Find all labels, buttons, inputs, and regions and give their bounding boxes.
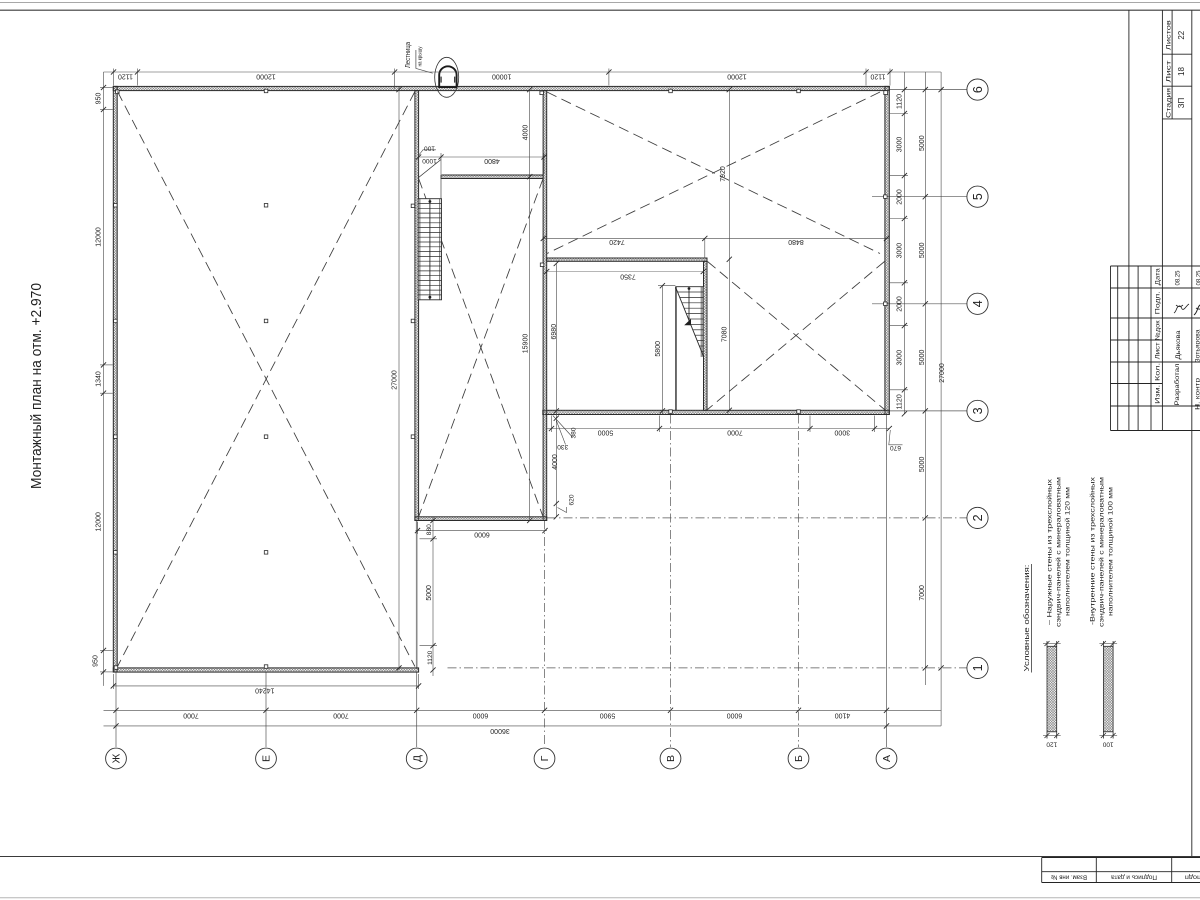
- svg-text:1120: 1120: [896, 94, 903, 109]
- svg-text:Лист: Лист: [1155, 342, 1162, 359]
- svg-text:1000: 1000: [422, 157, 437, 164]
- svg-text:1120: 1120: [870, 73, 885, 80]
- svg-text:7000: 7000: [333, 711, 349, 718]
- svg-text:Г: Г: [539, 755, 551, 761]
- svg-text:сэндвич-панелей с минераловатн: сэндвич-панелей с минераловатным: [1098, 477, 1106, 627]
- svg-text:6980: 6980: [551, 324, 558, 340]
- svg-text:3: 3: [971, 407, 985, 414]
- svg-text:Разработал: Разработал: [1173, 363, 1181, 405]
- svg-text:7350: 7350: [620, 273, 636, 280]
- svg-text:наполнителем толщиной 100 мм: наполнителем толщиной 100 мм: [1107, 487, 1115, 616]
- svg-text:2000: 2000: [896, 189, 903, 205]
- svg-text:12000: 12000: [95, 512, 102, 532]
- svg-text:5000: 5000: [598, 429, 614, 436]
- svg-text:3000: 3000: [896, 137, 903, 153]
- svg-text:330: 330: [557, 443, 568, 450]
- svg-text:Листов: Листов: [1166, 19, 1173, 50]
- svg-text:Подп.: Подп.: [1155, 291, 1162, 314]
- svg-text:950: 950: [92, 655, 99, 667]
- svg-text:Дата: Дата: [1155, 268, 1162, 285]
- svg-text:Лист: Лист: [1166, 60, 1173, 82]
- svg-text:8480: 8480: [788, 238, 804, 245]
- svg-text:Условные обозначения:: Условные обозначения:: [1022, 565, 1031, 672]
- svg-text:– Наружные стены из трехслойны: – Наружные стены из трехслойных: [1046, 478, 1054, 625]
- svg-text:А: А: [881, 755, 893, 762]
- svg-text:12000: 12000: [256, 72, 276, 79]
- svg-text:4000: 4000: [522, 125, 529, 141]
- svg-text:7000: 7000: [183, 711, 199, 718]
- svg-text:6: 6: [971, 86, 985, 93]
- svg-text:Монтажный план на отм. +2.970: Монтажный план на отм. +2.970: [29, 283, 45, 489]
- svg-text:100: 100: [1102, 741, 1113, 748]
- svg-text:08.25: 08.25: [1196, 270, 1200, 286]
- svg-text:1340: 1340: [96, 371, 103, 387]
- svg-text:3000: 3000: [896, 350, 903, 366]
- svg-text:3000: 3000: [896, 243, 903, 259]
- svg-text:7080: 7080: [721, 327, 728, 343]
- svg-text:18: 18: [1177, 67, 1186, 76]
- svg-text:1120: 1120: [896, 394, 903, 409]
- svg-text:7420: 7420: [609, 238, 625, 245]
- svg-text:12000: 12000: [727, 72, 747, 79]
- svg-text:120: 120: [1046, 741, 1057, 748]
- svg-text:14240: 14240: [255, 687, 275, 694]
- svg-text:1: 1: [971, 664, 985, 671]
- svg-text:5900: 5900: [600, 711, 616, 718]
- svg-text:1120: 1120: [427, 650, 434, 665]
- svg-text:6000: 6000: [727, 711, 743, 718]
- svg-text:15900: 15900: [522, 334, 529, 354]
- svg-text:подп: подп: [1185, 874, 1200, 881]
- svg-text:Ж: Ж: [111, 753, 123, 763]
- svg-text:7000: 7000: [727, 429, 743, 436]
- svg-text:В: В: [665, 755, 677, 762]
- svg-text:22: 22: [1177, 30, 1186, 39]
- svg-text:Д: Д: [411, 755, 423, 762]
- svg-text:950: 950: [96, 93, 103, 105]
- svg-text:5000: 5000: [919, 457, 926, 473]
- svg-text:Дьякова: Дьякова: [1175, 330, 1182, 359]
- svg-text:670: 670: [890, 444, 901, 451]
- svg-text:36000: 36000: [490, 727, 510, 734]
- svg-text:Стадия: Стадия: [1166, 87, 1173, 118]
- svg-text:4: 4: [971, 300, 985, 307]
- svg-text:27000: 27000: [939, 363, 946, 383]
- svg-text:№док: №док: [1155, 320, 1162, 340]
- svg-text:10000: 10000: [492, 72, 512, 79]
- svg-text:Зотьярова: Зотьярова: [1195, 329, 1200, 362]
- svg-text:380: 380: [570, 427, 577, 438]
- svg-text:12000: 12000: [95, 227, 102, 247]
- svg-text:5: 5: [971, 193, 985, 200]
- svg-text:Е: Е: [261, 755, 273, 762]
- svg-text:27000: 27000: [392, 370, 399, 390]
- svg-text:Б: Б: [793, 755, 805, 762]
- svg-text:Н. контр: Н. контр: [1195, 378, 1200, 410]
- svg-text:2: 2: [971, 514, 985, 521]
- svg-text:наполнителем толщиной 120 мм: наполнителем толщиной 120 мм: [1064, 487, 1072, 616]
- svg-text:5000: 5000: [919, 350, 926, 366]
- svg-text:4800: 4800: [484, 157, 500, 164]
- svg-text:6000: 6000: [474, 531, 490, 538]
- svg-text:3000: 3000: [834, 429, 850, 436]
- svg-text:4000: 4000: [552, 454, 559, 470]
- svg-text:1120: 1120: [118, 73, 133, 80]
- svg-text:ЗП: ЗП: [1177, 97, 1186, 108]
- svg-text:08.25: 08.25: [1175, 270, 1182, 286]
- svg-text:сэндвич-панелей с минераловатн: сэндвич-панелей с минераловатным: [1055, 477, 1063, 627]
- svg-text:100: 100: [424, 145, 435, 152]
- svg-text:5000: 5000: [426, 585, 433, 601]
- svg-text:на крышу: на крышу: [418, 46, 424, 66]
- svg-text:Лестница: Лестница: [403, 42, 412, 68]
- svg-text:620: 620: [569, 494, 576, 505]
- svg-text:7920: 7920: [720, 166, 727, 182]
- svg-text:Взам. инв №: Взам. инв №: [1051, 874, 1087, 881]
- svg-text:5800: 5800: [655, 341, 662, 357]
- svg-text:Подпись и дата: Подпись и дата: [1111, 874, 1157, 881]
- svg-text:2000: 2000: [896, 296, 903, 312]
- svg-text:5000: 5000: [919, 135, 926, 151]
- svg-text:6000: 6000: [473, 711, 489, 718]
- svg-text:7000: 7000: [919, 585, 926, 601]
- svg-text:5000: 5000: [919, 242, 926, 258]
- svg-text:Изм.: Изм.: [1155, 385, 1162, 404]
- svg-text:4100: 4100: [835, 711, 851, 718]
- svg-text:Кол.: Кол.: [1155, 363, 1162, 381]
- svg-text:880: 880: [426, 524, 433, 535]
- svg-text:-Внутренние стены из трехслойн: -Внутренние стены из трехслойных: [1089, 476, 1097, 625]
